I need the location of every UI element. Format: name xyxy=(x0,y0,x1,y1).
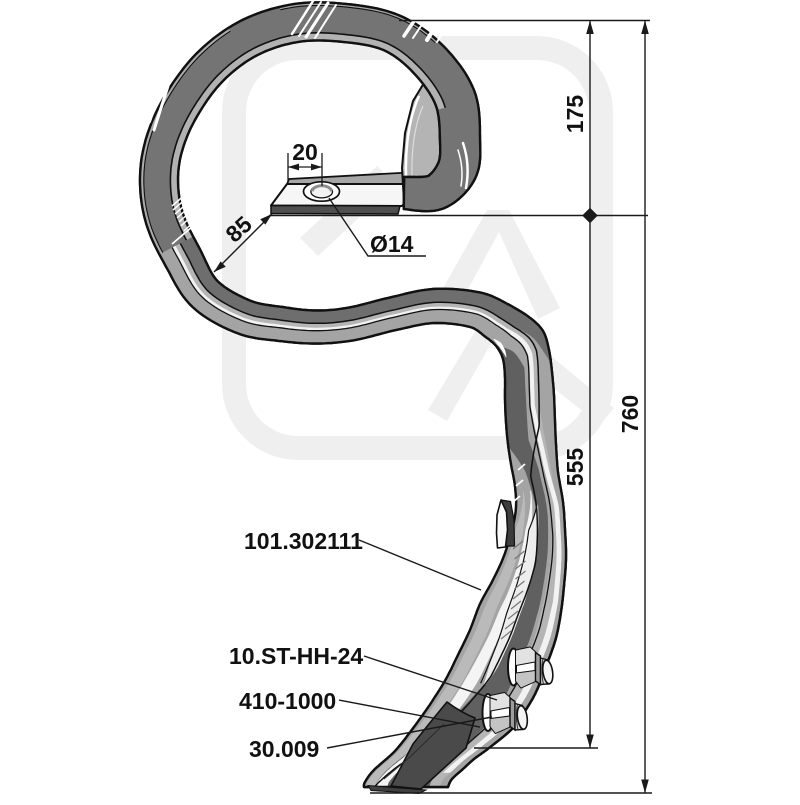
svg-text:101.302111: 101.302111 xyxy=(244,528,363,554)
svg-text:30.009: 30.009 xyxy=(249,736,319,762)
svg-text:Ø14: Ø14 xyxy=(370,231,414,257)
svg-text:760: 760 xyxy=(617,395,643,433)
svg-text:555: 555 xyxy=(562,448,588,487)
svg-text:10.ST-HH-24: 10.ST-HH-24 xyxy=(229,643,363,669)
svg-text:410-1000: 410-1000 xyxy=(239,688,336,714)
svg-text:20: 20 xyxy=(292,139,318,165)
svg-text:175: 175 xyxy=(562,95,588,134)
